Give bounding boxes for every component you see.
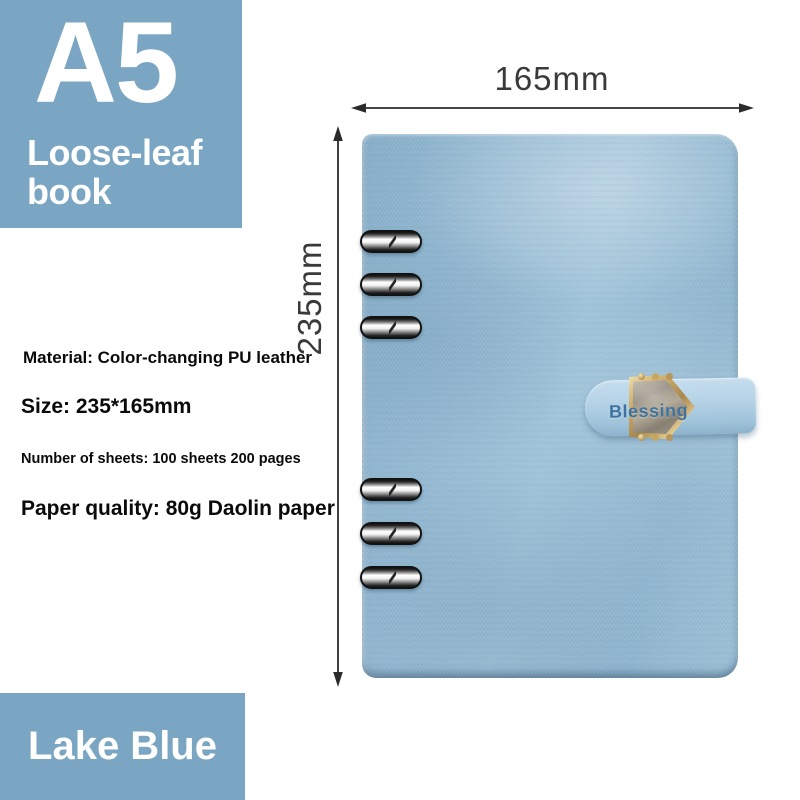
binder-ring xyxy=(360,273,422,296)
buckle-knobs-bottom xyxy=(638,434,645,441)
binder-ring xyxy=(360,478,422,501)
binder-ring xyxy=(360,316,422,339)
color-name-label: Lake Blue xyxy=(28,724,217,769)
spec-material: Material: Color-changing PU leather xyxy=(23,348,312,368)
dimension-width-label: 165mm xyxy=(472,60,632,98)
product-type-label: Loose-leaf book xyxy=(27,134,217,212)
spec-size: Size: 235*165mm xyxy=(21,395,191,419)
binder-ring xyxy=(360,522,422,545)
spec-sheets: Number of sheets: 100 sheets 200 pages xyxy=(21,451,301,467)
product-image-canvas: A5 Loose-leaf book Material: Color-chang… xyxy=(0,0,800,800)
size-badge: A5 Loose-leaf book xyxy=(0,0,242,228)
buckle-knobs-top xyxy=(638,373,645,380)
size-badge-text: A5 xyxy=(34,6,177,121)
spec-paper: Paper quality: 80g Daolin paper xyxy=(21,497,335,521)
binder-ring xyxy=(360,230,422,253)
color-name-box: Lake Blue xyxy=(0,693,245,800)
binder-ring xyxy=(360,566,422,589)
clasp-brand-text: Blessing xyxy=(609,400,688,422)
dimension-height-label: 235mm xyxy=(292,218,328,378)
